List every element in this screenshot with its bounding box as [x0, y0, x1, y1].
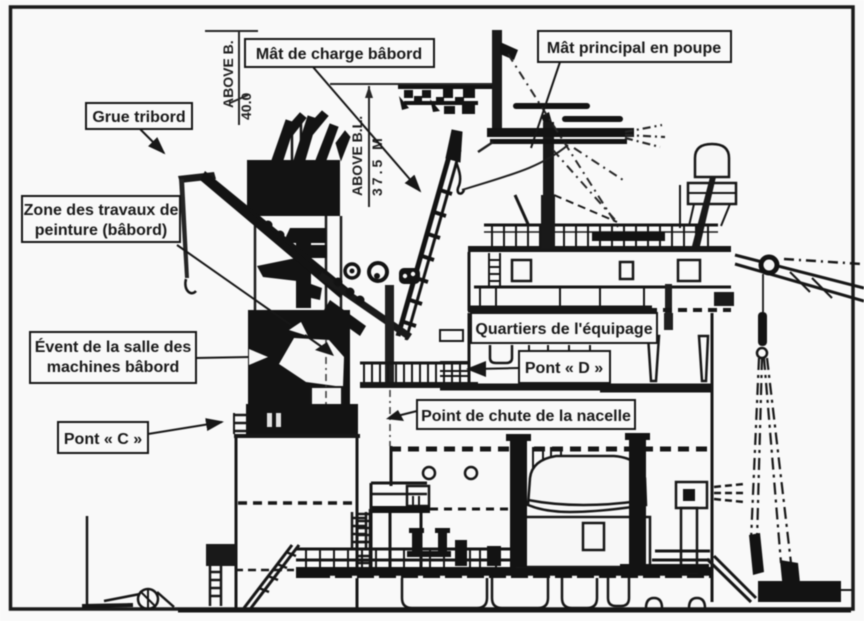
svg-text:37.5 M: 37.5 M	[369, 135, 385, 196]
svg-text:ABOVE B.L.: ABOVE B.L.	[349, 116, 365, 196]
svg-text:40.0: 40.0	[238, 93, 254, 120]
svg-text:Mât principal en poupe: Mât principal en poupe	[547, 40, 721, 57]
svg-text:Pont « C »: Pont « C »	[64, 431, 142, 448]
svg-text:Pont « D »: Pont « D »	[525, 360, 603, 377]
svg-text:peinture (bâbord): peinture (bâbord)	[35, 222, 167, 239]
svg-text:Mât de charge bâbord: Mât de charge bâbord	[256, 46, 422, 63]
svg-text:Zone des travaux de: Zone des travaux de	[24, 202, 179, 219]
svg-text:Grue tribord: Grue tribord	[92, 109, 185, 126]
svg-text:Point de chute de la nacelle: Point de chute de la nacelle	[421, 408, 631, 425]
svg-text:ABOVE B.: ABOVE B.	[220, 40, 236, 108]
svg-text:Évent de la salle des: Évent de la salle des	[35, 337, 192, 356]
svg-text:Quartiers de l'équipage: Quartiers de l'équipage	[475, 321, 652, 338]
svg-text:machines bâbord: machines bâbord	[47, 359, 179, 376]
